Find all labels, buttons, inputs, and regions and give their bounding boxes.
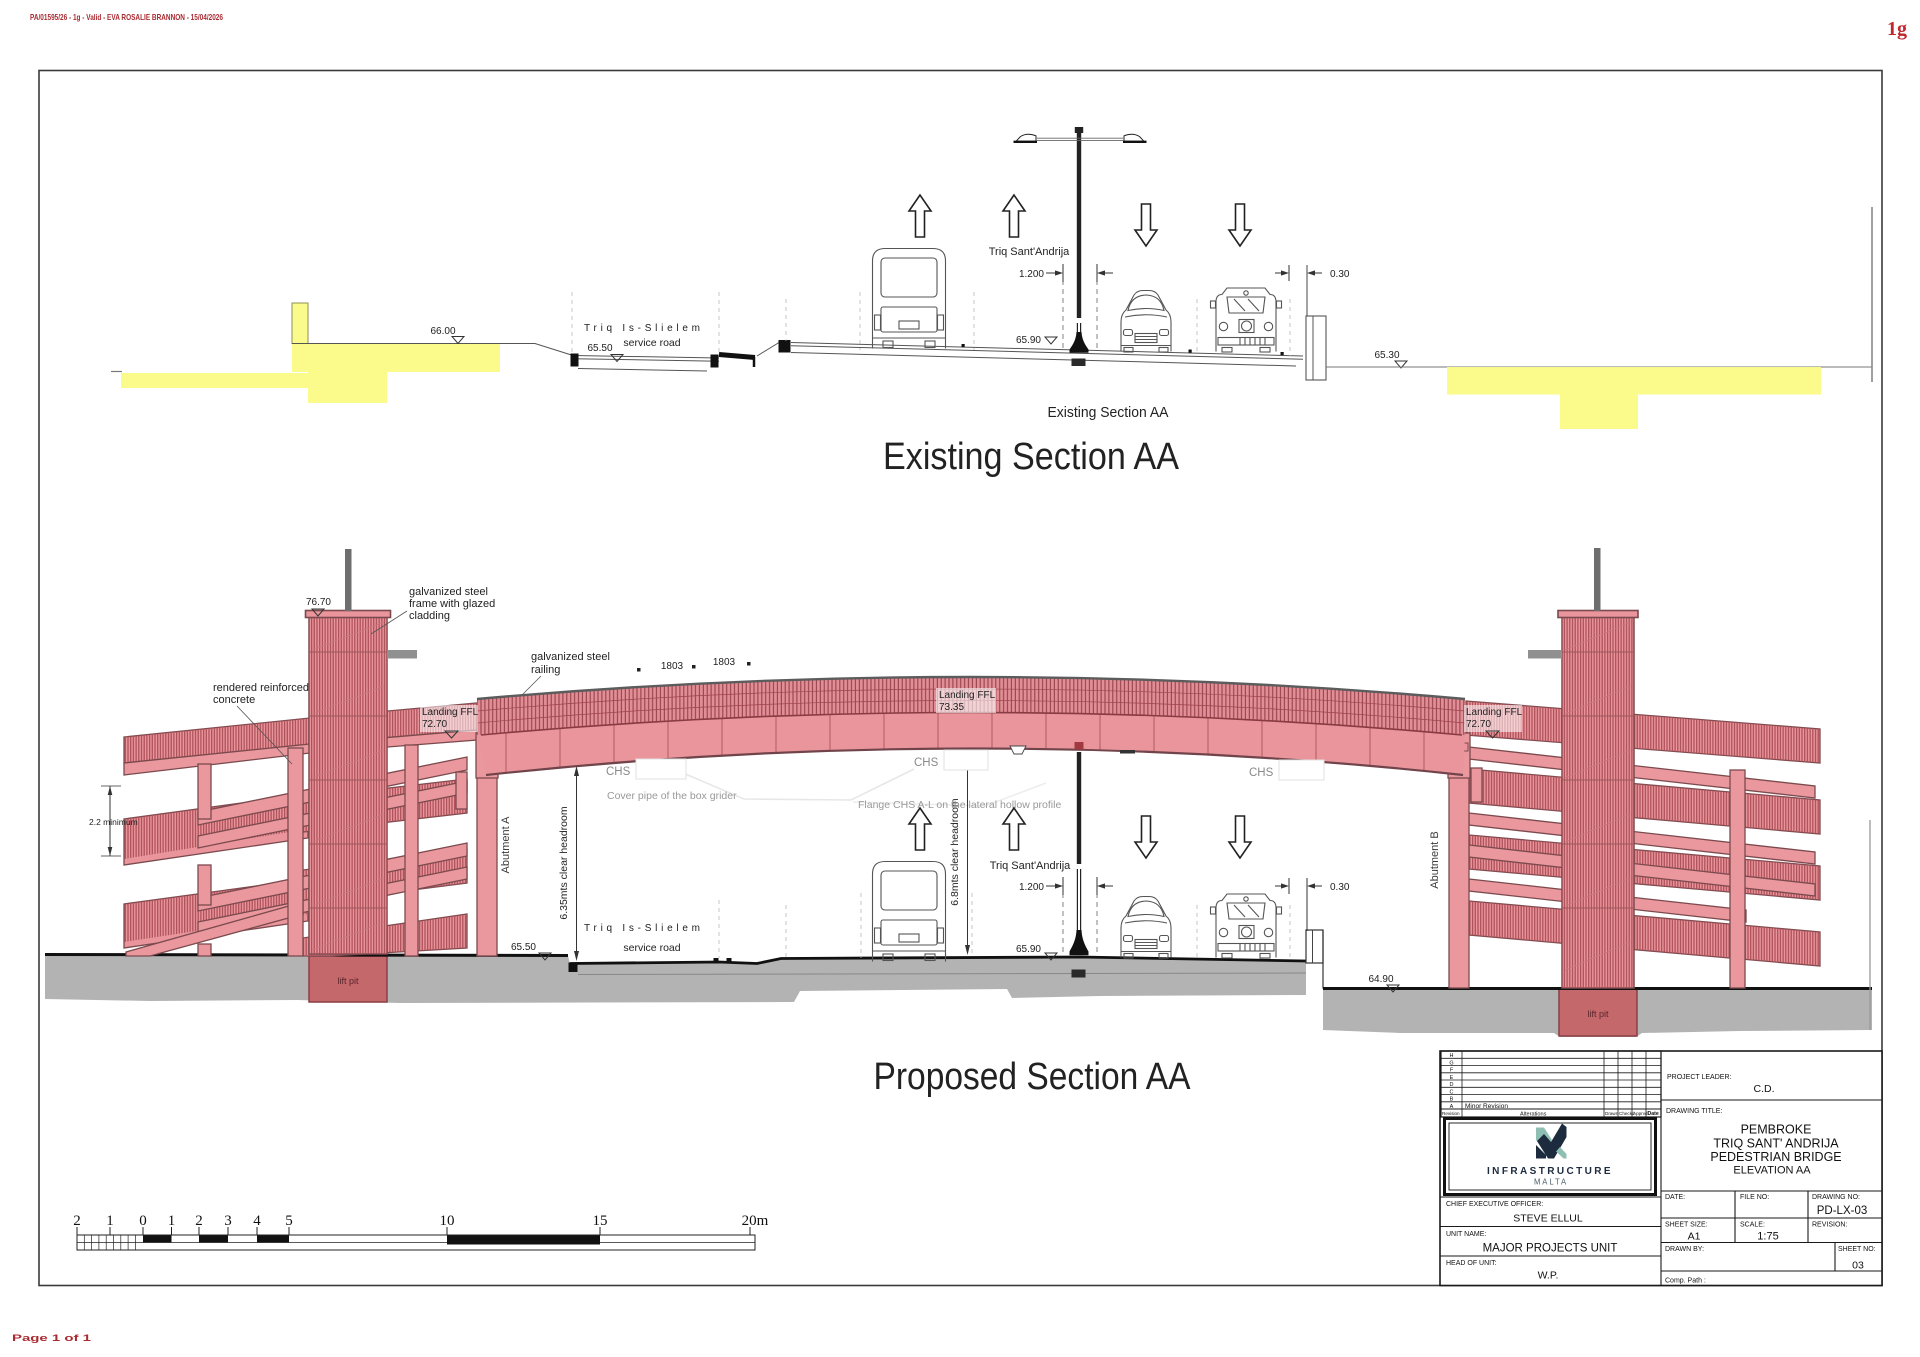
- svg-text:2: 2: [73, 1213, 81, 1229]
- svg-text:3: 3: [224, 1213, 232, 1229]
- svg-text:Landing FFL: Landing FFL: [939, 690, 996, 701]
- svg-text:Existing Section AA: Existing Section AA: [1048, 404, 1169, 421]
- svg-text:1.200: 1.200: [1019, 269, 1044, 280]
- svg-text:1g: 1g: [1887, 18, 1907, 40]
- svg-text:73.35: 73.35: [939, 702, 964, 713]
- svg-text:0: 0: [139, 1213, 147, 1229]
- svg-text:G: G: [1449, 1060, 1453, 1066]
- svg-text:10: 10: [440, 1213, 455, 1229]
- svg-text:FILE NO:: FILE NO:: [1740, 1194, 1769, 1201]
- svg-text:72.70: 72.70: [1466, 719, 1491, 730]
- svg-text:65.90: 65.90: [1016, 335, 1041, 346]
- svg-text:Abutment B: Abutment B: [1429, 831, 1441, 888]
- svg-text:STEVE ELLUL: STEVE ELLUL: [1513, 1213, 1583, 1225]
- svg-text:1.200: 1.200: [1019, 882, 1044, 893]
- svg-text:Revision: Revision: [1442, 1111, 1460, 1116]
- svg-text:ELEVATION AA: ELEVATION AA: [1733, 1165, 1811, 1177]
- svg-text:Date: Date: [1648, 1111, 1659, 1117]
- svg-text:PEDESTRIAN BRIDGE: PEDESTRIAN BRIDGE: [1710, 1150, 1841, 1164]
- svg-text:20m: 20m: [742, 1213, 769, 1229]
- svg-text:Drawn: Drawn: [1605, 1111, 1619, 1116]
- svg-text:service road: service road: [623, 337, 680, 349]
- svg-text:MAJOR PROJECTS UNIT: MAJOR PROJECTS UNIT: [1483, 1243, 1618, 1255]
- svg-text:CHS: CHS: [1249, 767, 1274, 779]
- svg-text:lift pit: lift pit: [1587, 1009, 1609, 1019]
- svg-text:6.35mts clear headroom: 6.35mts clear headroom: [558, 806, 570, 919]
- svg-text:0.30: 0.30: [1330, 882, 1350, 893]
- svg-text:Alterations: Alterations: [1520, 1111, 1547, 1117]
- svg-text:PEMBROKE: PEMBROKE: [1741, 1123, 1812, 1137]
- svg-text:Landing FFL: Landing FFL: [1466, 707, 1523, 718]
- svg-text:C.D.: C.D.: [1754, 1083, 1775, 1095]
- svg-text:65.30: 65.30: [1374, 350, 1399, 361]
- svg-text:1803: 1803: [661, 661, 684, 672]
- svg-text:2: 2: [195, 1213, 203, 1229]
- svg-text:concrete: concrete: [213, 694, 255, 706]
- svg-text:service road: service road: [623, 942, 680, 954]
- svg-text:galvanized steel: galvanized steel: [409, 586, 488, 598]
- svg-text:HEAD OF UNIT:: HEAD OF UNIT:: [1446, 1260, 1497, 1267]
- svg-text:1: 1: [168, 1213, 176, 1229]
- svg-text:CHIEF EXECUTIVE OFFICER:: CHIEF EXECUTIVE OFFICER:: [1446, 1201, 1543, 1208]
- svg-text:galvanized steel: galvanized steel: [531, 651, 610, 663]
- svg-text:Comp. Path :: Comp. Path :: [1665, 1278, 1706, 1285]
- svg-text:E: E: [1450, 1075, 1454, 1081]
- svg-text:Apprvd: Apprvd: [1633, 1111, 1648, 1116]
- svg-text:5: 5: [285, 1213, 293, 1229]
- svg-text:SHEET NO:: SHEET NO:: [1838, 1246, 1876, 1253]
- svg-text:Landing FFL: Landing FFL: [422, 707, 479, 718]
- svg-text:SCALE:: SCALE:: [1740, 1222, 1765, 1229]
- svg-text:REVISION:: REVISION:: [1812, 1222, 1847, 1229]
- svg-text:CHS: CHS: [606, 766, 631, 778]
- svg-text:03: 03: [1852, 1260, 1864, 1272]
- svg-text:0.30: 0.30: [1330, 269, 1350, 280]
- svg-text:PROJECT LEADER:: PROJECT LEADER:: [1667, 1074, 1731, 1081]
- svg-text:Cover pipe of the box grider: Cover pipe of the box grider: [607, 790, 737, 802]
- svg-text:Triq Sant'Andrija: Triq Sant'Andrija: [989, 246, 1070, 258]
- svg-text:4: 4: [253, 1213, 261, 1229]
- svg-text:76.70: 76.70: [306, 597, 331, 608]
- svg-text:Minor Revision: Minor Revision: [1465, 1103, 1508, 1110]
- svg-text:railing: railing: [531, 664, 560, 676]
- svg-text:lift pit: lift pit: [337, 976, 359, 986]
- svg-text:6.8mts clear headroom: 6.8mts clear headroom: [949, 798, 961, 906]
- svg-text:PD-LX-03: PD-LX-03: [1817, 1205, 1868, 1217]
- svg-text:Abutment A: Abutment A: [500, 816, 512, 874]
- svg-text:1803: 1803: [713, 657, 736, 668]
- svg-text:frame with glazed: frame with glazed: [409, 598, 495, 610]
- svg-text:72.70: 72.70: [422, 719, 447, 730]
- svg-text:D: D: [1450, 1082, 1454, 1088]
- svg-text:Existing Section AA: Existing Section AA: [883, 436, 1180, 478]
- svg-text:Page 1 of 1: Page 1 of 1: [12, 1333, 92, 1344]
- svg-text:PA/01595/26 - 1g - Valid - EVA: PA/01595/26 - 1g - Valid - EVA ROSALIE B…: [30, 12, 223, 22]
- svg-text:65.50: 65.50: [511, 942, 536, 953]
- svg-text:Flange CHS A-L on the lateral: Flange CHS A-L on the lateral hollow pro…: [858, 799, 1061, 811]
- svg-text:SHEET SIZE:: SHEET SIZE:: [1665, 1222, 1708, 1229]
- svg-text:DRAWING NO:: DRAWING NO:: [1812, 1194, 1860, 1201]
- svg-text:Triq Sant'Andrija: Triq Sant'Andrija: [990, 860, 1071, 872]
- svg-text:65.90: 65.90: [1016, 944, 1041, 955]
- svg-text:Proposed Section AA: Proposed Section AA: [874, 1056, 1192, 1098]
- svg-text:UNIT NAME:: UNIT NAME:: [1446, 1231, 1486, 1238]
- svg-text:65.50: 65.50: [587, 343, 612, 354]
- svg-text:66.00: 66.00: [430, 326, 455, 337]
- svg-text:rendered reinforced: rendered reinforced: [213, 682, 309, 694]
- svg-text:15: 15: [593, 1213, 608, 1229]
- svg-text:1:75: 1:75: [1757, 1231, 1778, 1243]
- svg-text:INFRASTRUCTURE: INFRASTRUCTURE: [1487, 1165, 1613, 1177]
- svg-text:MALTA: MALTA: [1534, 1178, 1568, 1187]
- svg-text:C: C: [1450, 1089, 1454, 1095]
- svg-text:W.P.: W.P.: [1538, 1270, 1559, 1282]
- svg-text:64.90: 64.90: [1368, 974, 1393, 985]
- svg-text:2.2 minimum: 2.2 minimum: [89, 817, 138, 827]
- svg-text:DRAWING TITLE:: DRAWING TITLE:: [1666, 1108, 1722, 1115]
- svg-text:1: 1: [106, 1213, 114, 1229]
- svg-text:TRIQ SANT' ANDRIJA: TRIQ SANT' ANDRIJA: [1713, 1137, 1839, 1151]
- svg-text:DATE:: DATE:: [1665, 1194, 1685, 1201]
- svg-text:CHS: CHS: [914, 757, 939, 769]
- svg-text:B: B: [1450, 1097, 1454, 1103]
- svg-text:A1: A1: [1688, 1231, 1701, 1243]
- svg-text:DRAWN BY:: DRAWN BY:: [1665, 1246, 1704, 1253]
- svg-text:A: A: [1450, 1104, 1454, 1110]
- svg-text:cladding: cladding: [409, 610, 450, 622]
- svg-text:H: H: [1450, 1053, 1454, 1059]
